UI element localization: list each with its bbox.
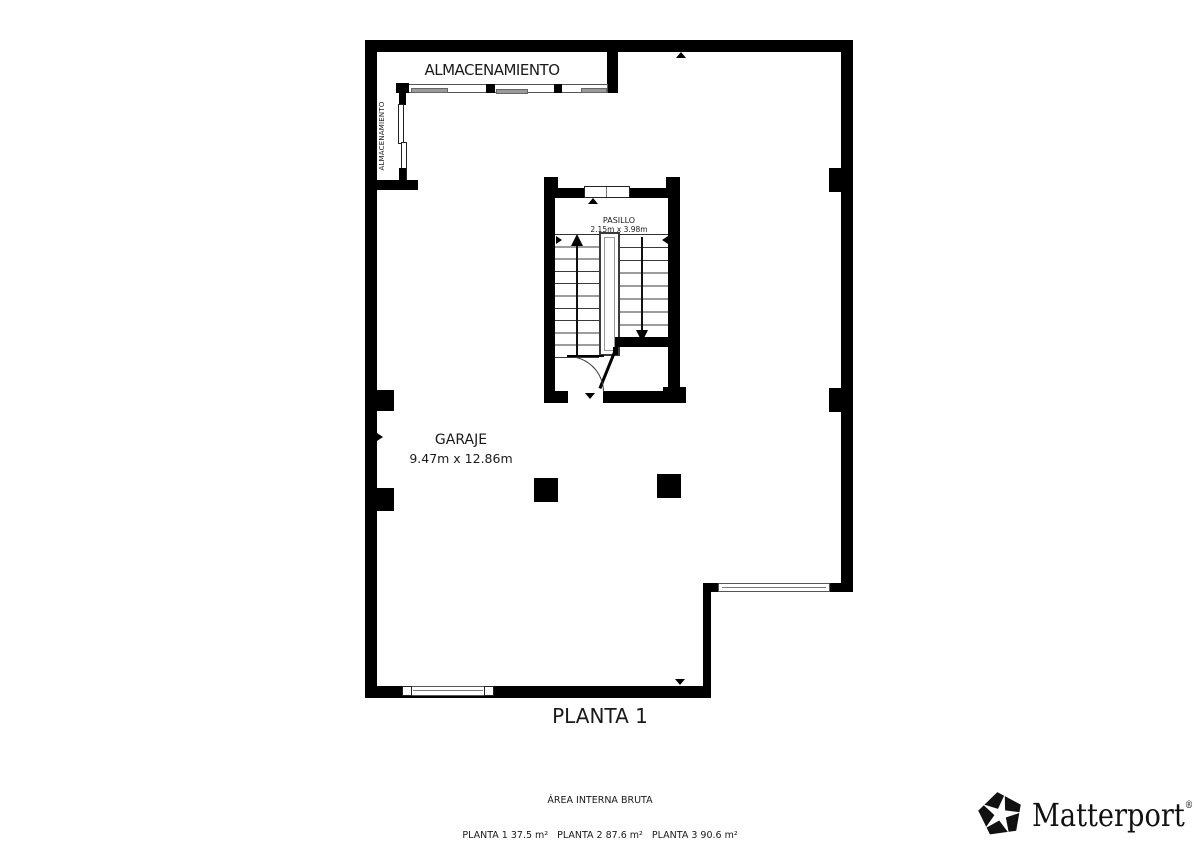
floor-plan-page: ALMACENAMIENTO ALMACENAMIENTO PASILLO 2.… (0, 0, 1200, 849)
wall-notch-vertical (703, 583, 711, 693)
wall-left (365, 40, 377, 698)
wall-right (841, 40, 853, 592)
stairs-right-wall (668, 177, 680, 403)
pillar-left-2 (377, 488, 394, 511)
stairs-rail-inner (604, 237, 615, 351)
stairs-bottom-wall-stub (603, 391, 620, 403)
pasillo-label: PASILLO (559, 216, 679, 225)
closet-bottom-wall (620, 391, 668, 403)
notch-window-line (722, 587, 826, 588)
pillar-right-2 (829, 388, 841, 412)
storage-left-bottom-wall (365, 180, 418, 190)
storage-window-pane-2 (496, 89, 528, 94)
storage-left-label: ALMACENAMIENTO (378, 91, 390, 181)
registered-mark: ® (1185, 800, 1194, 811)
storage-top-right-wall (607, 50, 618, 93)
storage-window-pane-1 (411, 88, 448, 93)
stairs-tick-left (556, 236, 562, 244)
stairs-window-mullion (606, 187, 607, 197)
wall-notch-stub-right (829, 583, 841, 592)
matterport-logo-icon (977, 789, 1024, 840)
bottom-window (402, 686, 494, 696)
matterport-logo-text: Matterport® (1032, 799, 1193, 831)
up-arrow-shaft (576, 246, 578, 356)
stairs-bottom-wall-left (544, 391, 568, 403)
tick-top-wall (676, 52, 686, 58)
bottom-window-cap-right (484, 686, 494, 696)
bottom-window-line (413, 690, 483, 691)
garage-column-1 (534, 478, 558, 502)
garage-label: GARAJE (381, 432, 541, 448)
tick-bottom-wall (675, 679, 685, 685)
storage-left-door-panel-1 (398, 104, 404, 144)
stairs-pillar-bottom-right (663, 387, 686, 403)
pasillo-door-tick (585, 393, 595, 399)
pasillo-door-arc (568, 356, 604, 392)
stairs-flight-down (620, 235, 668, 338)
wall-notch-stub-left (703, 583, 719, 592)
garage-column-2 (657, 474, 681, 498)
storage-band-stub-2 (554, 84, 562, 93)
storage-band-stub-1 (486, 84, 495, 93)
stairs-top-wall-right (630, 188, 668, 198)
up-arrow-icon (571, 234, 583, 246)
pillar-left-1 (377, 390, 394, 411)
pasillo-dimensions: 2.15m x 3.98m (559, 225, 679, 234)
matterport-logo: Matterport® (977, 789, 1200, 840)
storage-band-block-left (396, 83, 409, 93)
stairs-tick-right (662, 236, 668, 244)
stairs-window-tick (588, 198, 598, 204)
floor-title: PLANTA 1 (500, 704, 700, 728)
storage-top-label: ALMACENAMIENTO (377, 61, 607, 79)
down-arrow-shaft (641, 237, 643, 331)
pasillo-door-leaf (567, 355, 604, 357)
closet-top-wall (615, 337, 668, 347)
matterport-wordmark: Matterport (1032, 796, 1185, 834)
storage-window-pane-3 (581, 88, 607, 93)
stairs-left-wall (544, 177, 555, 403)
stairs-top-wall-left (555, 188, 584, 198)
stairs-window (584, 186, 630, 198)
bottom-window-cap-left (402, 686, 412, 696)
pillar-right-1 (829, 168, 841, 192)
stairs-pillar-top-right (666, 177, 680, 198)
garage-dimensions: 9.47m x 12.86m (381, 451, 541, 466)
